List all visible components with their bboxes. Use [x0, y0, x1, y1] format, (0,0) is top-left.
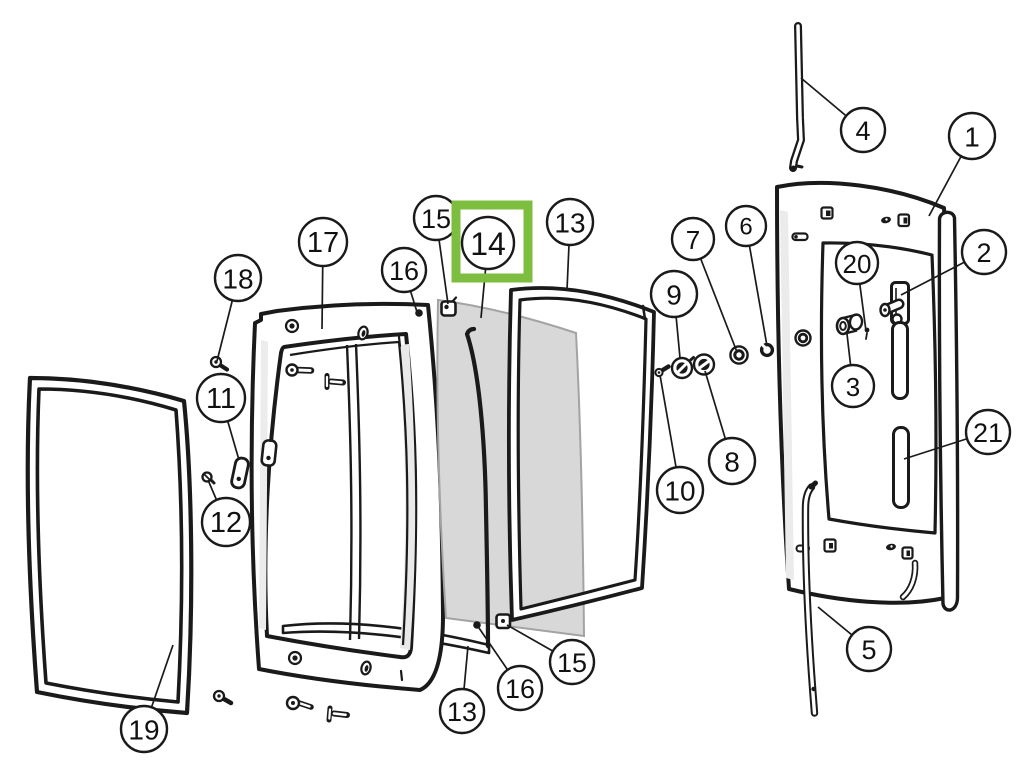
panel-grommet-hole: [796, 331, 811, 346]
frame-face-screws: [287, 365, 344, 388]
callout-number-4: 4: [855, 116, 870, 146]
part-9-lock-washer[interactable]: [672, 358, 694, 379]
part-7-grommet[interactable]: [730, 346, 747, 363]
callout-15[interactable]: 15: [550, 640, 594, 684]
callout-number-7: 7: [686, 225, 700, 255]
callout-13[interactable]: 13: [440, 689, 484, 733]
part-21-slot[interactable]: [894, 428, 909, 508]
callout-number-9: 9: [666, 280, 682, 311]
callout-12[interactable]: 12: [202, 498, 250, 546]
part-6-circlip[interactable]: [762, 345, 773, 356]
part-11-latch-keeper[interactable]: [231, 457, 250, 489]
callout-4[interactable]: 4: [841, 108, 885, 152]
callout-number-13: 13: [447, 697, 477, 727]
callout-20[interactable]: 20: [836, 242, 878, 284]
callout-5[interactable]: 5: [847, 627, 891, 671]
callout-18[interactable]: 18: [215, 255, 261, 301]
callout-19[interactable]: 19: [121, 706, 167, 752]
callout-16[interactable]: 16: [382, 248, 426, 292]
callout-21[interactable]: 21: [966, 410, 1010, 454]
callout-number-20: 20: [843, 249, 872, 279]
part-8-lock-washer[interactable]: [694, 355, 714, 375]
fastener-screws-bottom[interactable]: [214, 691, 347, 720]
part-4-upper-lock-rod[interactable]: [791, 26, 803, 172]
callout-17[interactable]: 17: [299, 218, 347, 266]
part-18-screw[interactable]: [211, 357, 227, 370]
callout-number-14: 14: [470, 226, 506, 262]
callout-16[interactable]: 16: [498, 666, 542, 710]
callout-number-13: 13: [554, 208, 585, 239]
callout-number-2: 2: [976, 238, 991, 268]
callout-number-10: 10: [664, 476, 695, 507]
callout-8[interactable]: 8: [709, 438, 755, 484]
part-10-screw[interactable]: [655, 367, 668, 377]
callout-11[interactable]: 11: [197, 374, 245, 422]
exploded-parts-diagram: 123456789101112131314151516161718192021: [0, 0, 1024, 781]
callout-2[interactable]: 2: [962, 230, 1006, 274]
callout-number-17: 17: [307, 227, 339, 259]
callout-number-11: 11: [206, 383, 236, 415]
panel-upper-slot: [893, 323, 908, 399]
callout-number-1: 1: [964, 122, 980, 153]
callout-3[interactable]: 3: [832, 365, 874, 407]
callout-number-21: 21: [973, 418, 1003, 448]
callout-number-18: 18: [222, 264, 253, 295]
callout-number-19: 19: [128, 715, 159, 746]
callout-10[interactable]: 10: [657, 467, 703, 513]
rod-detent: [811, 687, 815, 691]
panel-edge-trim: [939, 212, 957, 610]
callout-number-12: 12: [210, 507, 242, 539]
callout-number-5: 5: [861, 635, 876, 665]
callout-7[interactable]: 7: [672, 218, 714, 260]
diagram-canvas: 123456789101112131314151516161718192021: [0, 0, 1024, 781]
callout-number-15: 15: [421, 204, 451, 234]
frame-divider: [347, 345, 351, 640]
callout-14[interactable]: 14: [462, 217, 514, 269]
frame-keeper: [261, 440, 277, 466]
callout-1[interactable]: 1: [949, 113, 995, 159]
callout-15[interactable]: 15: [414, 196, 458, 240]
callout-number-6: 6: [739, 214, 752, 241]
callout-13[interactable]: 13: [547, 199, 593, 245]
callout-number-8: 8: [724, 447, 740, 478]
callout-6[interactable]: 6: [726, 206, 766, 246]
callout-number-16: 16: [389, 256, 419, 286]
callout-number-3: 3: [846, 372, 860, 402]
callout-number-16: 16: [505, 674, 535, 704]
callout-9[interactable]: 9: [651, 271, 697, 317]
frame-divider: [356, 344, 360, 639]
callout-number-15: 15: [557, 648, 587, 678]
